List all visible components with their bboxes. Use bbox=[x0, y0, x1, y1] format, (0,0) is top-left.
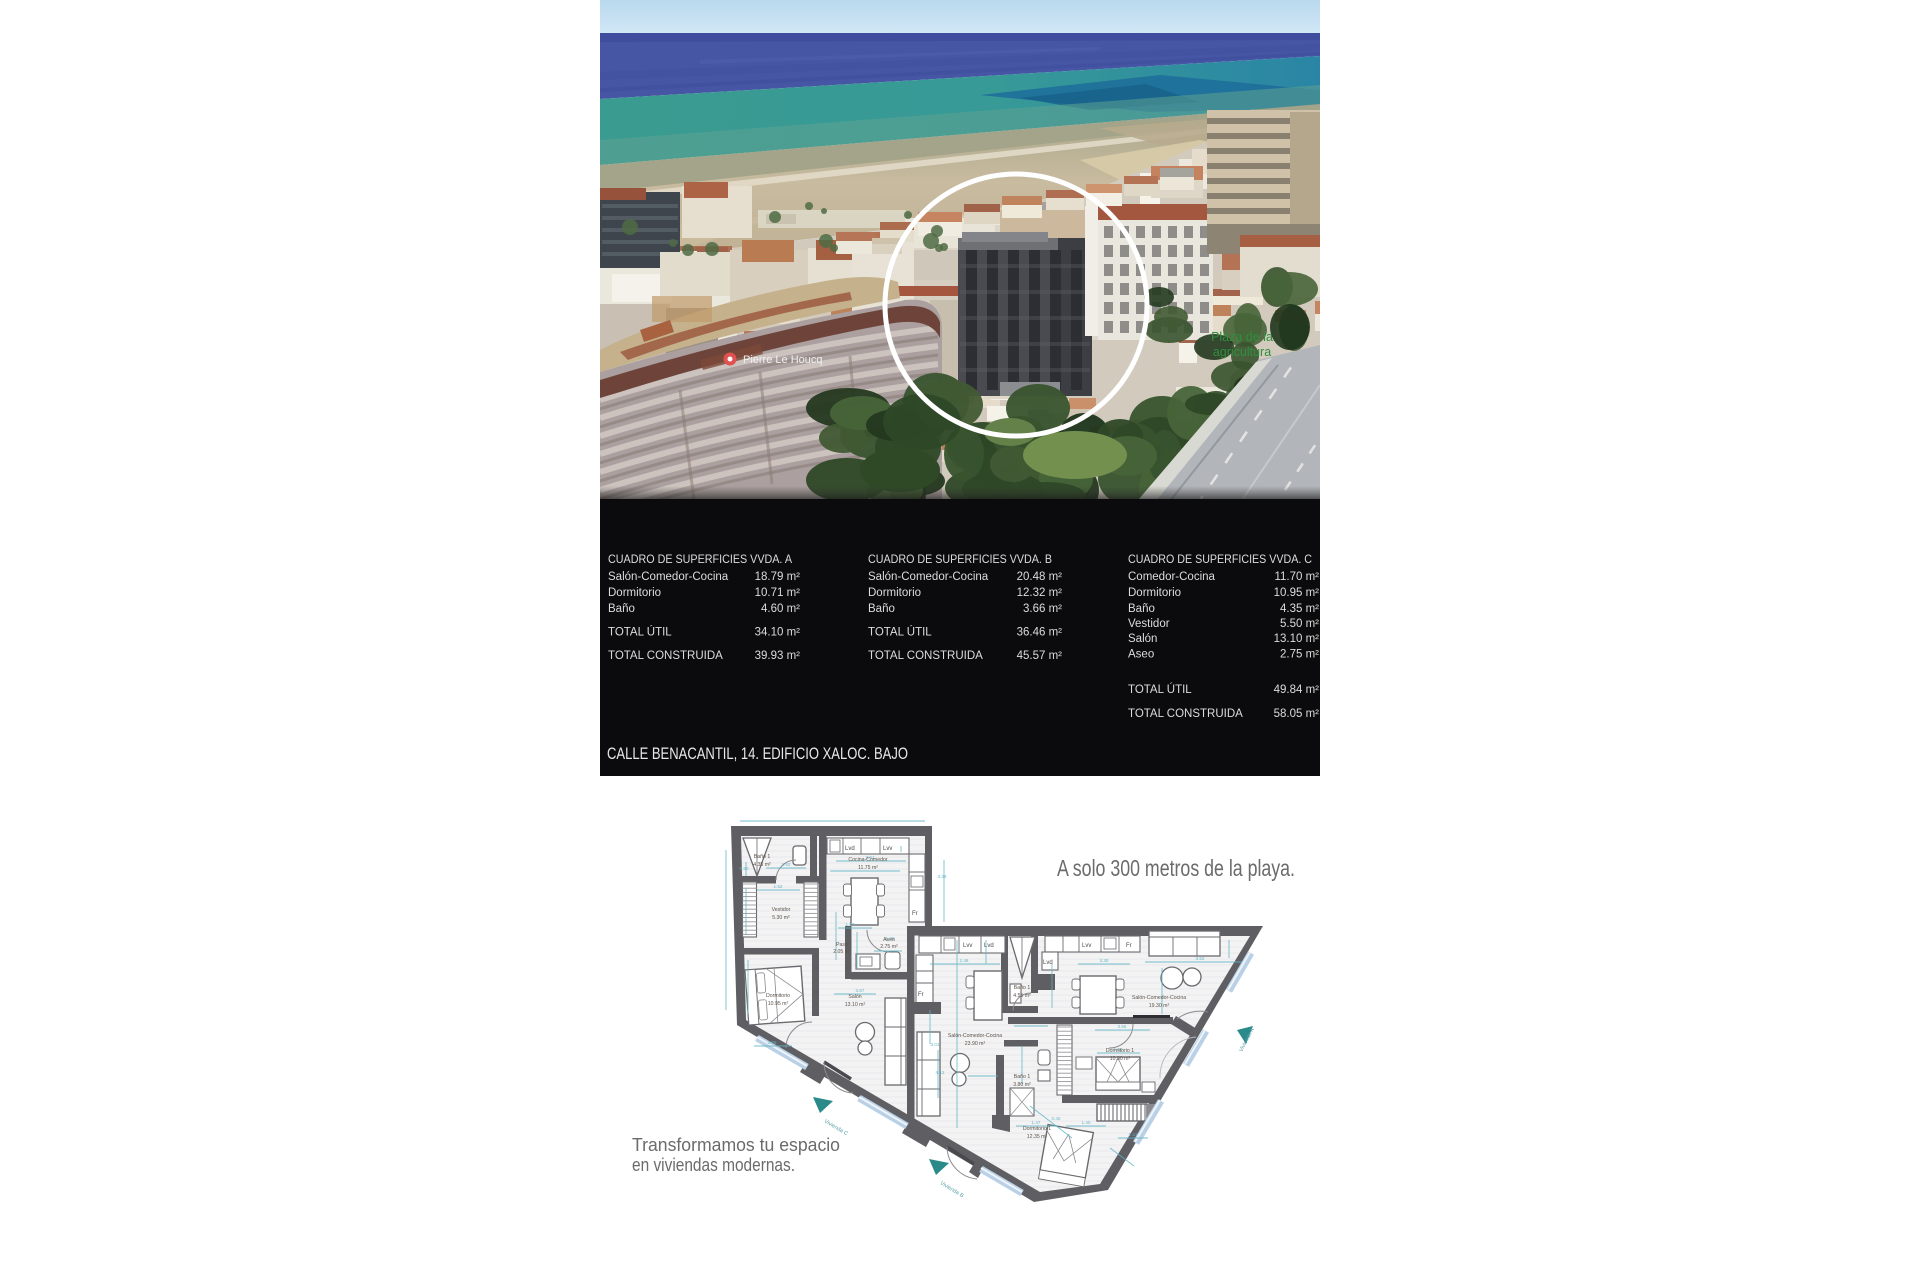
svg-text:Vivienda B: Vivienda B bbox=[939, 1181, 965, 1200]
svg-text:Fr: Fr bbox=[918, 992, 924, 998]
svg-text:TOTAL CONSTRUIDA: TOTAL CONSTRUIDA bbox=[608, 650, 723, 662]
svg-text:Baño 1: Baño 1 bbox=[1014, 985, 1031, 991]
svg-text:12.32 m²: 12.32 m² bbox=[1017, 587, 1063, 599]
svg-text:Salón-Comedor-Cocina: Salón-Comedor-Cocina bbox=[948, 1033, 1002, 1039]
svg-text:5.30 m²: 5.30 m² bbox=[772, 915, 790, 921]
svg-text:Lvv: Lvv bbox=[883, 846, 892, 852]
svg-text:Lvv: Lvv bbox=[963, 943, 972, 949]
svg-text:49.84 m²: 49.84 m² bbox=[1274, 684, 1320, 696]
svg-text:Baño: Baño bbox=[608, 603, 635, 615]
svg-text:CUADRO DE SUPERFICIES VVDA. A: CUADRO DE SUPERFICIES VVDA. A bbox=[608, 552, 792, 566]
svg-text:34.10 m²: 34.10 m² bbox=[755, 627, 801, 639]
svg-text:Dormitorio 1: Dormitorio 1 bbox=[1106, 1048, 1134, 1054]
svg-text:CALLE BENACANTIL, 14. EDIFICIO: CALLE BENACANTIL, 14. EDIFICIO XALOC. BA… bbox=[607, 745, 908, 763]
svg-text:Plaza de la: Plaza de la bbox=[1211, 330, 1273, 344]
svg-text:3.55: 3.55 bbox=[1118, 1024, 1127, 1029]
svg-text:Salón-Comedor-Cocina: Salón-Comedor-Cocina bbox=[608, 571, 729, 583]
svg-text:13.10 m²: 13.10 m² bbox=[1274, 633, 1320, 645]
svg-text:Lvv: Lvv bbox=[1082, 943, 1091, 949]
svg-text:Baño: Baño bbox=[1128, 603, 1155, 615]
svg-text:TOTAL CONSTRUIDA: TOTAL CONSTRUIDA bbox=[1128, 708, 1243, 720]
svg-text:3.01: 3.01 bbox=[931, 1042, 940, 1047]
svg-text:Aseo: Aseo bbox=[883, 937, 895, 943]
svg-text:TOTAL ÚTIL: TOTAL ÚTIL bbox=[608, 626, 672, 639]
svg-text:Dormitorio: Dormitorio bbox=[1128, 587, 1181, 599]
svg-text:1.52: 1.52 bbox=[774, 884, 783, 889]
svg-text:Fr: Fr bbox=[1126, 943, 1132, 949]
svg-text:TOTAL ÚTIL: TOTAL ÚTIL bbox=[868, 626, 932, 639]
svg-text:45.57 m²: 45.57 m² bbox=[1017, 650, 1063, 662]
svg-text:Lvd: Lvd bbox=[845, 846, 855, 852]
svg-text:A solo 300 metros de la playa.: A solo 300 metros de la playa. bbox=[1057, 855, 1295, 881]
svg-text:TOTAL ÚTIL: TOTAL ÚTIL bbox=[1128, 683, 1192, 696]
svg-text:Dormitorio 1: Dormitorio 1 bbox=[1023, 1126, 1051, 1132]
svg-text:4.12: 4.12 bbox=[936, 1070, 945, 1075]
svg-text:10.95 m²: 10.95 m² bbox=[768, 1001, 789, 1007]
svg-text:1.83: 1.83 bbox=[846, 922, 855, 927]
svg-text:3.55: 3.55 bbox=[768, 1040, 777, 1045]
svg-text:Vestidor: Vestidor bbox=[1128, 618, 1170, 630]
svg-text:3.52: 3.52 bbox=[1196, 956, 1205, 961]
svg-text:10.71 m²: 10.71 m² bbox=[755, 587, 801, 599]
svg-text:2.75 m²: 2.75 m² bbox=[880, 944, 898, 950]
svg-text:3.66 m²: 3.66 m² bbox=[1023, 603, 1062, 615]
svg-text:2.05 m²: 2.05 m² bbox=[833, 949, 851, 955]
svg-text:1.40: 1.40 bbox=[1082, 1120, 1091, 1125]
svg-text:12.35 m²: 12.35 m² bbox=[1027, 1134, 1048, 1140]
svg-text:CUADRO DE SUPERFICIES VVDA. C: CUADRO DE SUPERFICIES VVDA. C bbox=[1128, 552, 1312, 566]
svg-text:Salón: Salón bbox=[848, 994, 861, 1000]
svg-text:Baño 1: Baño 1 bbox=[1014, 1074, 1031, 1080]
svg-text:10.90 m²: 10.90 m² bbox=[1110, 1056, 1131, 1062]
svg-text:Pierre Le Houcq: Pierre Le Houcq bbox=[743, 354, 823, 366]
svg-text:TOTAL CONSTRUIDA: TOTAL CONSTRUIDA bbox=[868, 650, 983, 662]
svg-text:10.95 m²: 10.95 m² bbox=[1274, 587, 1320, 599]
svg-text:5.50 m²: 5.50 m² bbox=[1280, 618, 1319, 630]
svg-text:4.35 m²: 4.35 m² bbox=[1280, 603, 1319, 615]
svg-text:Salón: Salón bbox=[1128, 633, 1157, 645]
svg-text:Vestidor: Vestidor bbox=[772, 907, 791, 913]
svg-text:13.10 m²: 13.10 m² bbox=[845, 1002, 866, 1008]
svg-text:Lvd: Lvd bbox=[984, 943, 994, 949]
svg-text:20.48 m²: 20.48 m² bbox=[1017, 571, 1063, 583]
svg-text:4.60 m²: 4.60 m² bbox=[761, 603, 800, 615]
svg-text:19.30 m²: 19.30 m² bbox=[1149, 1003, 1170, 1009]
svg-text:Dormitorio: Dormitorio bbox=[608, 587, 661, 599]
svg-text:Paso: Paso bbox=[836, 942, 848, 948]
svg-text:CUADRO DE SUPERFICIES VVDA. B: CUADRO DE SUPERFICIES VVDA. B bbox=[868, 552, 1052, 566]
svg-text:Baño 1: Baño 1 bbox=[754, 854, 771, 860]
svg-text:36.46 m²: 36.46 m² bbox=[1017, 627, 1063, 639]
svg-text:en viviendas modernas.: en viviendas modernas. bbox=[632, 1154, 795, 1175]
svg-text:Cocina-Comedor: Cocina-Comedor bbox=[848, 857, 887, 863]
svg-text:4.35 m²: 4.35 m² bbox=[753, 862, 771, 868]
svg-text:11.75 m²: 11.75 m² bbox=[858, 865, 878, 871]
svg-text:0.40: 0.40 bbox=[1052, 1116, 1061, 1121]
svg-text:agricultura: agricultura bbox=[1213, 345, 1271, 359]
svg-text:1.47: 1.47 bbox=[1032, 1120, 1041, 1125]
svg-text:4.55 m²: 4.55 m² bbox=[1013, 993, 1031, 999]
svg-text:Fr: Fr bbox=[912, 911, 918, 917]
svg-text:11.70 m²: 11.70 m² bbox=[1274, 571, 1319, 583]
svg-text:Dormitorio: Dormitorio bbox=[766, 993, 790, 999]
svg-text:Lvd: Lvd bbox=[1043, 960, 1053, 966]
svg-text:3.30: 3.30 bbox=[1100, 958, 1109, 963]
svg-text:1.93: 1.93 bbox=[782, 862, 791, 867]
svg-text:58.05 m²: 58.05 m² bbox=[1274, 708, 1320, 720]
svg-text:3.67: 3.67 bbox=[856, 988, 865, 993]
svg-text:Comedor-Cocina: Comedor-Cocina bbox=[1128, 571, 1216, 583]
svg-text:0.90: 0.90 bbox=[740, 866, 749, 871]
svg-text:Transformamos tu espacio: Transformamos tu espacio bbox=[632, 1134, 840, 1155]
svg-text:Baño: Baño bbox=[868, 603, 895, 615]
svg-text:18.79 m²: 18.79 m² bbox=[755, 571, 801, 583]
svg-text:3.80 m²: 3.80 m² bbox=[1013, 1082, 1031, 1088]
svg-text:2.75 m²: 2.75 m² bbox=[1280, 649, 1319, 661]
svg-text:Dormitorio: Dormitorio bbox=[868, 587, 921, 599]
svg-text:Salón-Comedor-Cocina: Salón-Comedor-Cocina bbox=[868, 571, 989, 583]
svg-text:3.28: 3.28 bbox=[938, 874, 947, 879]
svg-text:23.90 m²: 23.90 m² bbox=[965, 1041, 986, 1047]
svg-text:1.21: 1.21 bbox=[1129, 1132, 1138, 1137]
svg-text:39.93 m²: 39.93 m² bbox=[755, 650, 801, 662]
svg-text:2.46: 2.46 bbox=[960, 958, 969, 963]
svg-text:Salón-Comedor-Cocina: Salón-Comedor-Cocina bbox=[1132, 995, 1186, 1001]
svg-text:Aseo: Aseo bbox=[1128, 649, 1154, 661]
